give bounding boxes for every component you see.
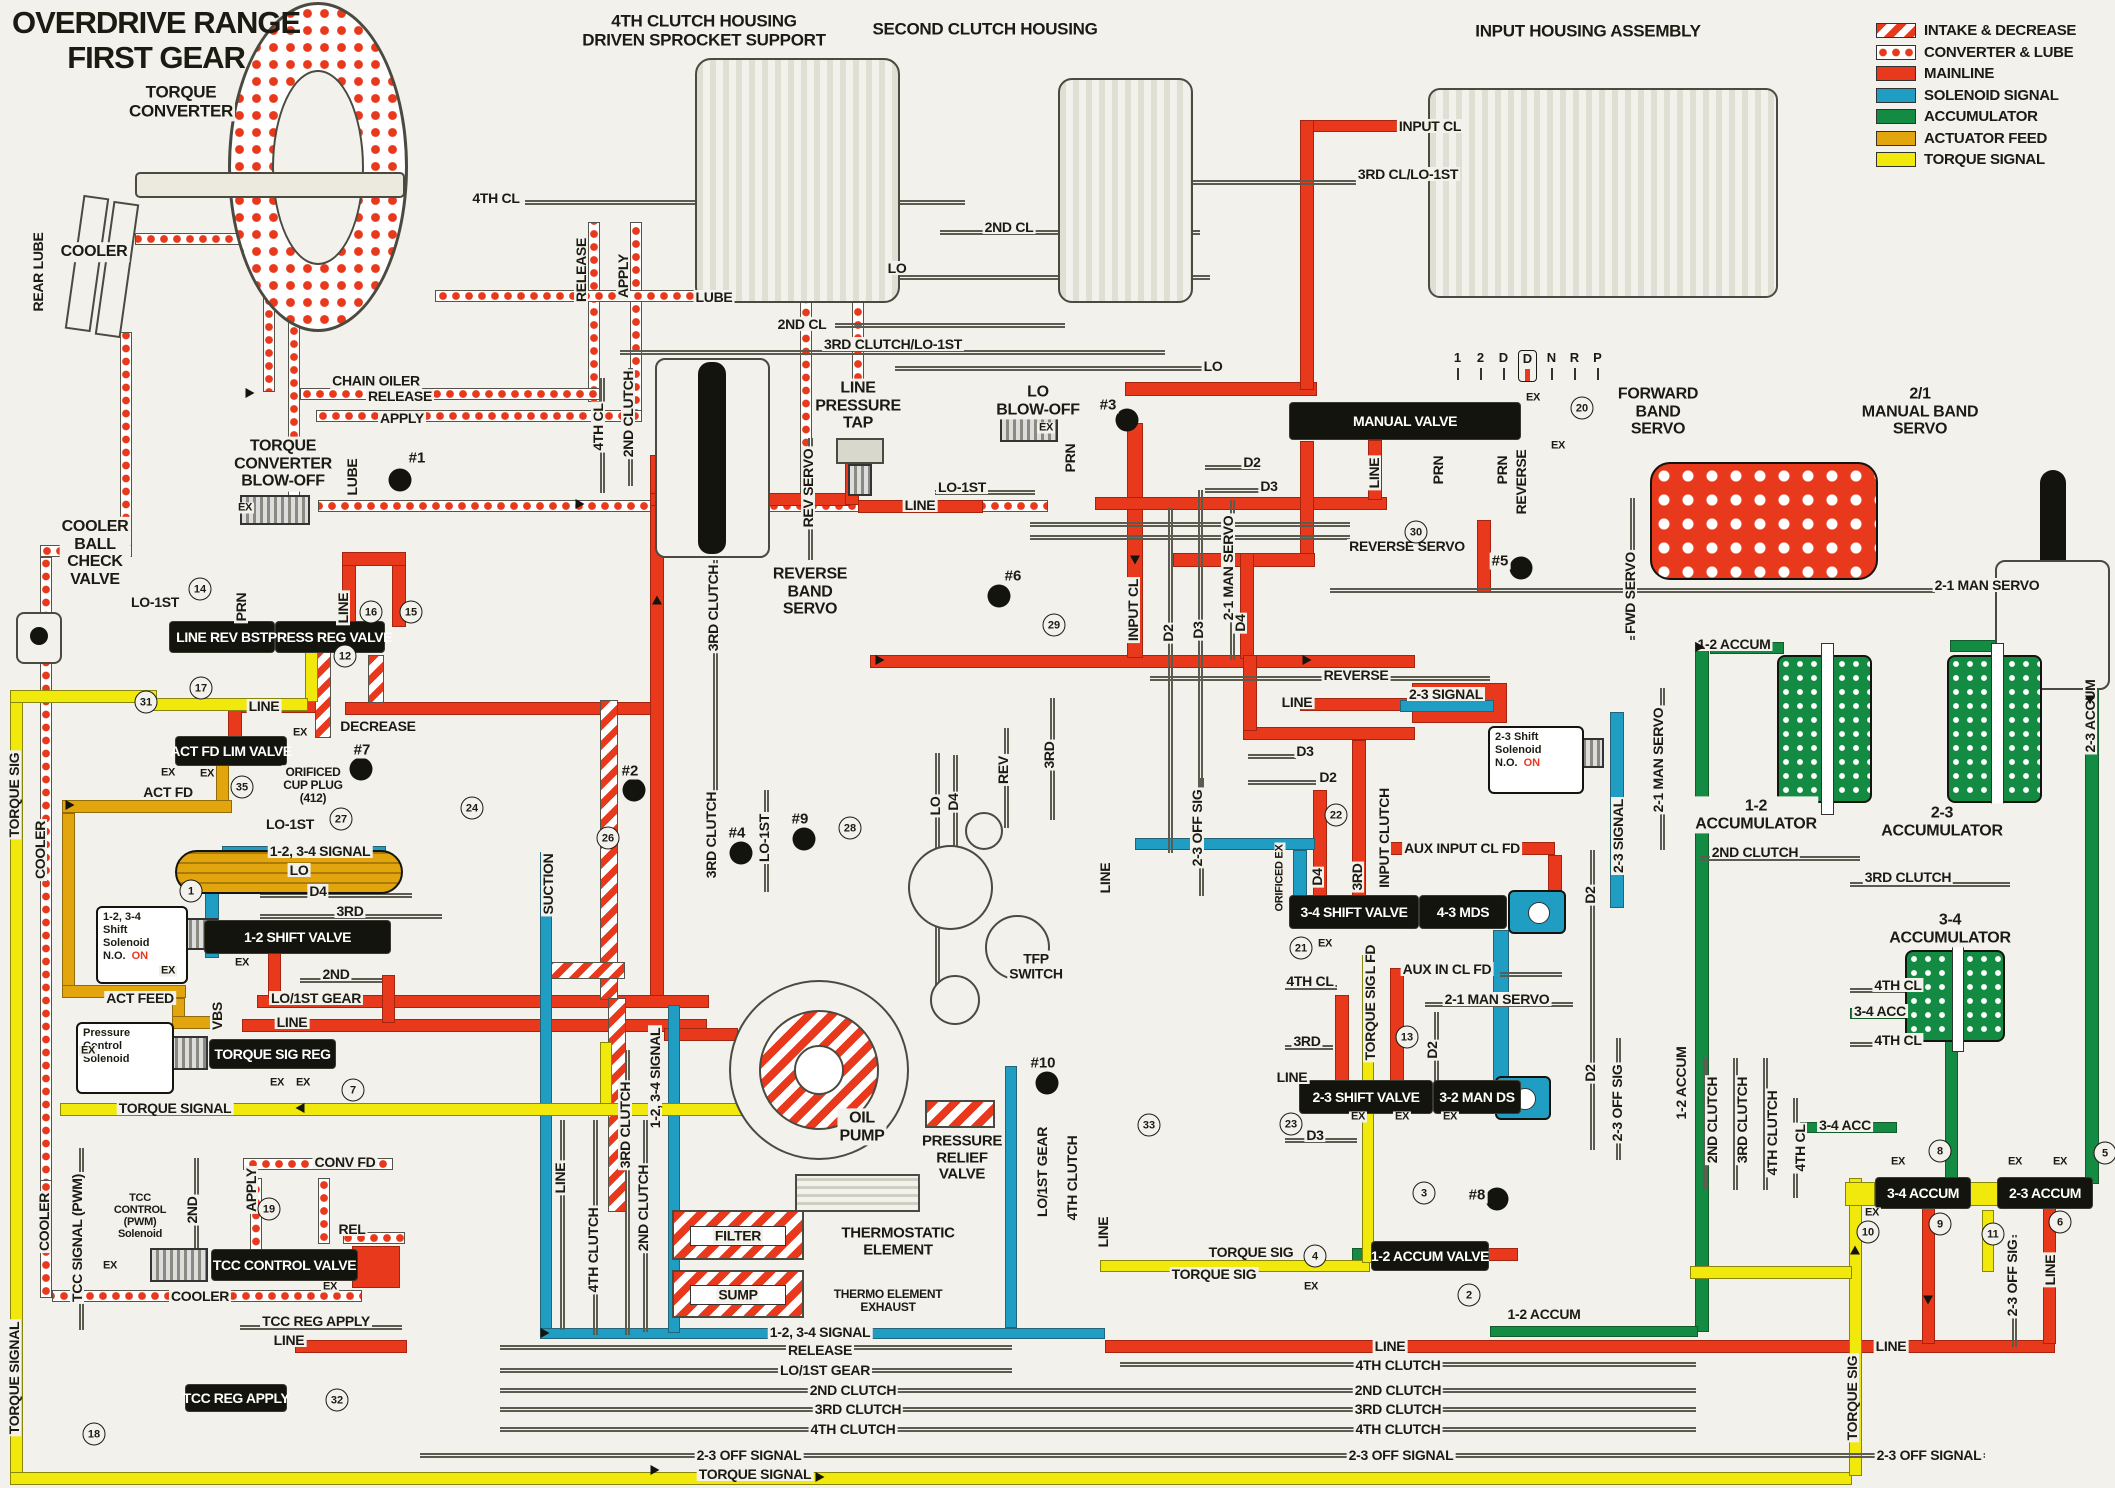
circled-number: 22	[1325, 804, 1348, 827]
pipe-passage	[500, 1388, 1696, 1393]
pipe-mainline	[382, 975, 395, 1023]
diagram-label: D2	[1317, 770, 1338, 784]
selector-position: N	[1543, 350, 1560, 382]
diagram-label: 2-3 OFF SIGNAL	[1347, 1448, 1456, 1462]
diagram-label: TCC SIGNAL (PWM)	[70, 1172, 84, 1304]
diagram-label: TORQUE SIG	[1363, 974, 1377, 1063]
diagram-label: COOLER	[169, 1289, 231, 1303]
pipe-mainline	[342, 552, 406, 566]
diagram-label: LINE	[2043, 1253, 2057, 1288]
circled-number: 32	[326, 1389, 349, 1412]
legend-swatch-icon	[1876, 109, 1916, 124]
circled-number: 10	[1857, 1221, 1880, 1244]
flow-arrow-icon	[246, 388, 255, 398]
circled-number: 30	[1405, 521, 1428, 544]
diagram-label: LUBE	[345, 457, 359, 498]
pipe-mainline	[1125, 382, 1317, 396]
section-label: THERMO ELEMENT EXHAUST	[832, 1287, 944, 1315]
diagram-label: 3RD	[334, 904, 365, 918]
exhaust-label: EX	[2006, 1157, 2024, 1168]
checkball-label: #7	[352, 742, 373, 759]
pipe-passage	[500, 1345, 1012, 1350]
circled-number: 20	[1571, 397, 1594, 420]
diagram-label: LO	[288, 863, 311, 877]
valve-3-4-shift-valve: 3-4 SHIFT VALVE	[1290, 896, 1418, 928]
diagram-label: D2	[1241, 455, 1262, 469]
diagram-label: 4TH CL	[1872, 1033, 1923, 1047]
checkball-label: #1	[407, 450, 428, 467]
pressure-relief-graphic	[925, 1100, 995, 1128]
cooler-check-ball	[30, 627, 48, 645]
diagram-label: 2ND CLUTCH	[1705, 1075, 1719, 1165]
hydraulic-circuit-diagram: OVERDRIVE RANGE FIRST GEAR	[0, 0, 2115, 1488]
accumulator-2-3-graphic	[1947, 655, 2042, 803]
pipe-mainline	[1240, 553, 1254, 659]
flow-arrow-icon	[1696, 642, 1705, 652]
checkball-label: #6	[1003, 568, 1024, 585]
reverse-band-servo-rod	[698, 362, 726, 554]
diagram-label: 4TH CLUTCH	[1065, 1134, 1079, 1223]
diagram-label: 2ND CLUTCH	[808, 1383, 898, 1397]
exhaust-label: EX	[1549, 441, 1567, 452]
flow-arrow-icon	[1130, 556, 1140, 565]
diagram-label: LINE	[1098, 861, 1112, 896]
section-label: 4TH CLUTCH HOUSING DRIVEN SPROCKET SUPPO…	[580, 11, 827, 50]
diagram-label: VBS	[210, 1000, 224, 1032]
valve-3-2-man-ds: 3-2 MAN DS	[1434, 1081, 1520, 1113]
checkball	[730, 842, 753, 865]
checkball-label: #5	[1490, 553, 1511, 570]
valve-torque-sig-reg: TORQUE SIG REG	[210, 1040, 335, 1068]
diagram-label: 2-1 MAN SERVO	[1651, 706, 1665, 815]
diagram-label: 3RD CLUTCH	[1863, 870, 1953, 884]
diagram-label: REV SERVO	[801, 447, 815, 530]
section-label: SUMP	[716, 1286, 759, 1303]
checkball	[1036, 1072, 1059, 1095]
diagram-label: LO-1ST	[757, 812, 771, 864]
pipe-intake-decrease	[368, 655, 384, 703]
title-line2: FIRST GEAR	[12, 41, 300, 76]
diagram-label: 3RD CLUTCH	[706, 563, 720, 653]
checkball	[1510, 557, 1533, 580]
pipe-mainline	[1243, 655, 1257, 731]
section-label: SECOND CLUTCH HOUSING	[870, 20, 1099, 41]
diagram-label: LINE	[247, 699, 282, 713]
checkball-label: #8	[1467, 1187, 1488, 1204]
pipe-passage	[500, 1427, 1696, 1432]
diagram-label: 2-1 MAN SERVO	[1443, 992, 1552, 1006]
diagram-label: 2ND	[185, 1194, 199, 1225]
pipe-actuator-feed	[62, 813, 75, 991]
diagram-label: RELEASE	[786, 1343, 854, 1357]
flow-arrow-icon	[651, 1465, 660, 1475]
section-label: FORWARD BAND SERVO	[1616, 385, 1700, 440]
diagram-label: LINE	[1367, 456, 1381, 491]
diagram-label: REV	[996, 754, 1010, 786]
pipe-passage	[1248, 754, 1296, 759]
pipe-mainline	[1390, 968, 1404, 1082]
section-label: LO BLOW-OFF	[994, 382, 1081, 419]
diagram-label: TCC REG APPLY	[260, 1314, 372, 1328]
checkball	[793, 828, 816, 851]
diagram-label: LINE	[1373, 1339, 1408, 1353]
legend: INTAKE & DECREASECONVERTER & LUBEMAINLIN…	[1876, 20, 2076, 171]
exhaust-label: EX	[1349, 1112, 1367, 1123]
diagram-label: COOLER	[33, 819, 47, 881]
diagram-label: 4TH CL	[1793, 1122, 1807, 1173]
diagram-label: SUCTION	[541, 852, 555, 917]
pipe-mainline	[1105, 1340, 2055, 1353]
selector-position: 1	[1449, 350, 1466, 382]
pipe-converter-lube	[135, 233, 245, 245]
section-label: 2/1 MANUAL BAND SERVO	[1860, 385, 1980, 440]
flow-arrow-icon	[1303, 655, 1312, 665]
flow-arrow-icon	[541, 1328, 550, 1338]
diagram-label: LINE	[1874, 1339, 1909, 1353]
diagram-label: REVERSE	[1322, 668, 1391, 682]
pipe-solenoid-signal	[540, 852, 552, 1330]
exhaust-label: EX	[101, 1261, 119, 1272]
exhaust-label: EX	[1524, 393, 1542, 404]
diagram-label: 2-3 SIGNAL	[1611, 797, 1625, 875]
diagram-label: INPUT CL	[1126, 577, 1140, 643]
diagram-label: D4	[946, 791, 960, 812]
diagram-label: 2-3 OFF SIG	[1190, 788, 1204, 869]
exhaust-label: EX	[159, 768, 177, 779]
diagram-label: LUBE	[694, 290, 735, 304]
diagram-label: PRN	[1063, 442, 1077, 475]
diagram-label: ORIFICED EX	[1275, 843, 1286, 914]
diagram-label: 3RD	[1350, 861, 1364, 892]
exhaust-label: EX	[79, 1046, 97, 1057]
diagram-label: LINE	[1280, 695, 1315, 709]
circled-number: 23	[1280, 1113, 1303, 1136]
pipe-mainline	[242, 1019, 707, 1032]
section-label: TCC CONTROL (PWM) Solenoid	[112, 1191, 168, 1241]
circled-number: 26	[597, 827, 620, 850]
legend-swatch-icon	[1876, 152, 1916, 167]
input-shaft	[135, 172, 405, 198]
diagram-label: 2-3 OFF SIG	[2005, 1238, 2019, 1319]
legend-label: MAINLINE	[1924, 65, 1994, 82]
exhaust-label: EX	[1889, 1157, 1907, 1168]
section-label: CHAIN OILER	[330, 372, 422, 389]
circled-number: 33	[1138, 1114, 1161, 1137]
diagram-label: 3-4 ACC	[1852, 1004, 1908, 1018]
circled-number: 6	[2049, 1211, 2072, 1234]
diagram-label: LO-1ST	[129, 595, 181, 609]
forward-band-servo-graphic	[1650, 462, 1878, 580]
legend-label: CONVERTER & LUBE	[1924, 44, 2073, 61]
pipe-mainline	[1300, 698, 1415, 711]
exhaust-label: EX	[294, 1078, 312, 1089]
valve-3-4-accum: 3-4 ACCUM	[1876, 1178, 1970, 1208]
tcc-solenoid-cylinder	[150, 1248, 208, 1282]
pipe-solenoid-signal	[1005, 1066, 1017, 1328]
pipe-mainline	[1243, 727, 1415, 740]
pipe-solenoid-signal	[1135, 838, 1315, 850]
diagram-label: 4TH CLUTCH	[1354, 1358, 1443, 1372]
diagram-label: AUX INPUT CL FD	[1402, 841, 1522, 855]
diagram-label: APPLY	[378, 411, 426, 425]
circled-number: 16	[360, 601, 383, 624]
valve-2-3-accum: 2-3 ACCUM	[1998, 1178, 2092, 1208]
diagram-label: REVERSE	[1514, 448, 1528, 517]
diagram-label: LINE	[903, 498, 938, 512]
circled-number: 9	[1929, 1213, 1952, 1236]
accumulator-1-2-graphic	[1777, 655, 1872, 803]
diagram-label: 3RD CLUTCH/LO-1ST	[822, 337, 964, 351]
diagram-label: TORQUE SIGNAL	[697, 1467, 814, 1481]
circled-number: 2	[1458, 1284, 1481, 1307]
diagram-label: 3RD	[1291, 1034, 1322, 1048]
solenoid-state: N.O.ON	[103, 950, 181, 963]
torque-converter-hub	[272, 70, 364, 265]
pipe-torque-signal	[150, 698, 308, 711]
diagram-label: D2	[1161, 622, 1175, 643]
diagram-label: LINE	[1096, 1215, 1110, 1250]
pipe-intake-decrease	[543, 962, 625, 979]
exhaust-label: EX	[233, 958, 251, 969]
diagram-label: D3	[1191, 619, 1205, 640]
diagram-label: 4TH CL	[1284, 974, 1335, 988]
diagram-label: DECREASE	[338, 719, 417, 733]
section-label: 3-4 ACCUMULATOR	[1887, 910, 2012, 947]
exhaust-label: EX	[1037, 423, 1055, 434]
selector-position: D	[1495, 350, 1512, 382]
tfp-switch-circle-1	[908, 845, 993, 930]
solenoid-box: PressureControlSolenoid	[76, 1022, 174, 1094]
flow-arrow-icon	[652, 596, 662, 605]
legend-label: SOLENOID SIGNAL	[1924, 87, 2059, 104]
diagram-label: 4TH CLUTCH	[586, 1206, 600, 1295]
diagram-label: 2-1 MAN SERVO	[1221, 514, 1235, 623]
pipe-passage	[500, 1407, 1696, 1412]
legend-item: ACCUMULATOR	[1876, 106, 2076, 128]
checkball-label: #10	[1028, 1055, 1057, 1072]
diagram-label: 4TH CLUTCH	[809, 1422, 898, 1436]
section-label: ORIFICED CUP PLUG (412)	[281, 765, 344, 807]
pipe-passage	[1030, 522, 1350, 527]
section-label: PRESSURE RELIEF VALVE	[920, 1132, 1004, 1184]
diagram-label: TORQUE SIG	[1170, 1267, 1259, 1281]
diagram-label: LO/1ST GEAR	[778, 1363, 872, 1377]
exhaust-label: EX	[1393, 1112, 1411, 1123]
selector-position: 2	[1472, 350, 1489, 382]
diagram-label: LINE	[1275, 1070, 1310, 1084]
diagram-label: 2-3 ACCUM	[2083, 677, 2097, 754]
legend-swatch-icon	[1876, 131, 1916, 146]
diagram-label: ACT FD	[141, 785, 195, 799]
valve-2-3-shift-valve: 2-3 SHIFT VALVE	[1300, 1081, 1432, 1113]
legend-label: ACTUATOR FEED	[1924, 130, 2047, 147]
exhaust-label: EX	[321, 1282, 339, 1293]
4-3-mds-element	[1508, 890, 1566, 934]
diagram-label: 2ND CLUTCH	[1710, 845, 1800, 859]
diagram-label: 2ND CLUTCH	[636, 1163, 650, 1253]
section-label: OIL PUMP	[837, 1108, 886, 1145]
circled-number: 19	[258, 1198, 281, 1221]
checkball-label: #4	[727, 825, 748, 842]
legend-item: INTAKE & DECREASE	[1876, 20, 2076, 42]
diagram-label: 4TH CLUTCH	[1354, 1422, 1443, 1436]
diagram-label: D3	[1304, 1128, 1325, 1142]
pipe-torque-signal	[1968, 1182, 1998, 1206]
diagram-label: 1-2, 3-4 SIGNAL	[648, 1026, 662, 1131]
diagram-label: LO-1ST	[264, 817, 316, 831]
circled-number: 15	[400, 601, 423, 624]
legend-label: TORQUE SIGNAL	[1924, 151, 2045, 168]
diagram-label: 2-3 OFF SIG	[1610, 1063, 1624, 1144]
checkball-label: #2	[620, 763, 641, 780]
diagram-label: APPLY	[244, 1166, 258, 1214]
circled-number: 4	[1304, 1245, 1327, 1268]
pipe-passage	[1500, 972, 1562, 977]
exhaust-label: EX	[159, 966, 177, 977]
legend-label: INTAKE & DECREASE	[1924, 22, 2076, 39]
checkball	[350, 758, 373, 781]
flow-arrow-icon	[1923, 1296, 1933, 1305]
section-label: 2-3 ACCUMULATOR	[1879, 803, 2004, 840]
section-label: COOLER BALL CHECK VALVE	[60, 517, 131, 589]
pipe-passage	[500, 1368, 1012, 1373]
exhaust-label: EX	[1441, 1112, 1459, 1123]
diagram-label: 1-2, 3-4 SIGNAL	[268, 844, 373, 858]
exhaust-label: EX	[198, 769, 216, 780]
diagram-label: 3RD CLUTCH	[618, 1080, 632, 1170]
diagram-label: TORQUE SIGNAL	[7, 1320, 21, 1437]
fourth-clutch-housing-graphic	[695, 58, 900, 303]
tfp-switch-circle-3	[930, 975, 980, 1025]
diagram-label: 4TH CLUTCH	[1765, 1089, 1779, 1178]
diagram-label: APPLY	[616, 252, 630, 300]
section-label: FILTER	[713, 1227, 763, 1244]
diagram-label: FWD SERVO	[1623, 550, 1637, 636]
pipe-converter-lube	[120, 332, 132, 547]
diagram-label: PRN	[1495, 454, 1509, 487]
diagram-label: LO	[928, 795, 942, 818]
exhaust-label: EX	[291, 728, 309, 739]
circled-number: 17	[190, 677, 213, 700]
diagram-label: 2ND CL	[776, 317, 829, 331]
circled-number: 11	[1982, 1223, 2005, 1246]
diagram-label: 3RD CLUTCH	[813, 1402, 903, 1416]
pipe-converter-lube	[40, 660, 52, 1185]
diagram-label: 3-4 ACC	[1817, 1118, 1873, 1132]
section-label: TORQUE CONVERTER BLOW-OFF	[232, 437, 334, 492]
diagram-label: D2	[1583, 1062, 1597, 1083]
diagram-label: 4TH CL	[591, 401, 605, 452]
circled-number: 13	[1396, 1026, 1419, 1049]
pipe-passage	[560, 1120, 565, 1330]
checkball	[1486, 1188, 1509, 1211]
exhaust-label: EX	[1316, 939, 1334, 950]
legend-label: ACCUMULATOR	[1924, 108, 2038, 125]
diagram-label: D4	[1310, 866, 1324, 887]
valve-4-3-mds: 4-3 MDS	[1420, 896, 1506, 928]
exhaust-label: EX	[236, 503, 254, 514]
exhaust-label: EX	[1302, 1282, 1320, 1293]
pipe-accumulator	[1945, 1040, 1958, 1182]
valve-1-2-accum-valve: 1-2 ACCUM VALVE	[1372, 1242, 1488, 1270]
pipe-passage	[1030, 535, 1350, 540]
checkball	[1116, 409, 1139, 432]
line-pressure-tap-thread	[848, 464, 872, 496]
pipe-torque-signal	[1845, 1182, 1875, 1206]
diagram-label: 2-3 OFF SIGNAL	[1875, 1448, 1984, 1462]
range-selector: 12DDNRP	[1449, 350, 1606, 382]
diagram-label: AUX IN CL FD	[1401, 962, 1494, 976]
diagram-label: 1-2 ACCUM	[1674, 1044, 1688, 1121]
checkball	[389, 469, 412, 492]
diagram-label: 2-3 OFF SIGNAL	[695, 1448, 804, 1462]
section-label: TFP SWITCH	[1007, 951, 1064, 984]
circled-number: 3	[1413, 1182, 1436, 1205]
diagram-label: CONV FD	[313, 1155, 378, 1169]
flow-arrow-icon	[1850, 1246, 1860, 1255]
page-title: OVERDRIVE RANGE FIRST GEAR	[12, 6, 300, 75]
diagram-label: RELEASE	[366, 389, 434, 403]
pipe-passage	[1168, 180, 1356, 185]
diagram-label: INPUT CLUTCH	[1377, 786, 1391, 890]
diagram-label: ACT FEED	[104, 991, 176, 1005]
circled-number: 8	[1929, 1140, 1952, 1163]
pipe-mainline	[295, 1340, 407, 1353]
diagram-label: D2	[1583, 884, 1597, 905]
pipe-passage	[1168, 508, 1173, 853]
valve-line-rev-bst: LINE REV BST	[170, 622, 274, 652]
diagram-label: TORQUE SIGNAL	[117, 1101, 234, 1115]
diagram-label: 3RD CLUTCH	[704, 790, 718, 880]
diagram-label: REAR LUBE	[31, 231, 45, 314]
circled-number: 18	[83, 1423, 106, 1446]
pipe-mainline	[1095, 497, 1387, 510]
flow-arrow-icon	[876, 655, 885, 665]
section-label: INPUT HOUSING ASSEMBLY	[1473, 22, 1702, 43]
diagram-label: D2	[1425, 1039, 1439, 1060]
diagram-label: 2ND CL	[983, 220, 1036, 234]
exhaust-label: EX	[268, 1078, 286, 1089]
legend-swatch-icon	[1876, 45, 1916, 60]
pipe-accumulator	[1490, 1326, 1698, 1337]
selector-position: D	[1518, 350, 1537, 382]
diagram-label: 2ND CLUTCH	[621, 369, 635, 459]
legend-item: MAINLINE	[1876, 63, 2076, 85]
pipe-actuator-feed	[62, 800, 232, 813]
diagram-label: LO/1ST GEAR	[269, 991, 363, 1005]
pipe-converter-lube	[318, 1178, 330, 1244]
diagram-label: 3RD	[1042, 739, 1056, 770]
diagram-label: 1-2 ACCUM	[1505, 1307, 1582, 1321]
flow-arrow-icon	[296, 1103, 305, 1113]
diagram-label: 4TH CL	[1872, 978, 1923, 992]
diagram-label: LO	[886, 261, 909, 275]
diagram-label: LO	[1202, 359, 1225, 373]
diagram-label: LINE	[553, 1161, 567, 1196]
checkball-label: #3	[1098, 397, 1119, 414]
diagram-label: 1-2, 3-4 SIGNAL	[768, 1325, 873, 1339]
section-label: 1-2 ACCUMULATOR	[1693, 796, 1818, 833]
thermostatic-element-graphic	[795, 1174, 920, 1212]
circled-number: 31	[135, 691, 158, 714]
diagram-label: 3RD CLUTCH	[1735, 1075, 1749, 1165]
checkball-label: #9	[790, 811, 811, 828]
pipe-converter-lube	[588, 222, 600, 402]
diagram-label: 3RD CLUTCH	[1353, 1402, 1443, 1416]
pipe-accumulator	[1695, 642, 1709, 1332]
pipe-passage	[835, 323, 1065, 328]
selector-position: R	[1566, 350, 1583, 382]
